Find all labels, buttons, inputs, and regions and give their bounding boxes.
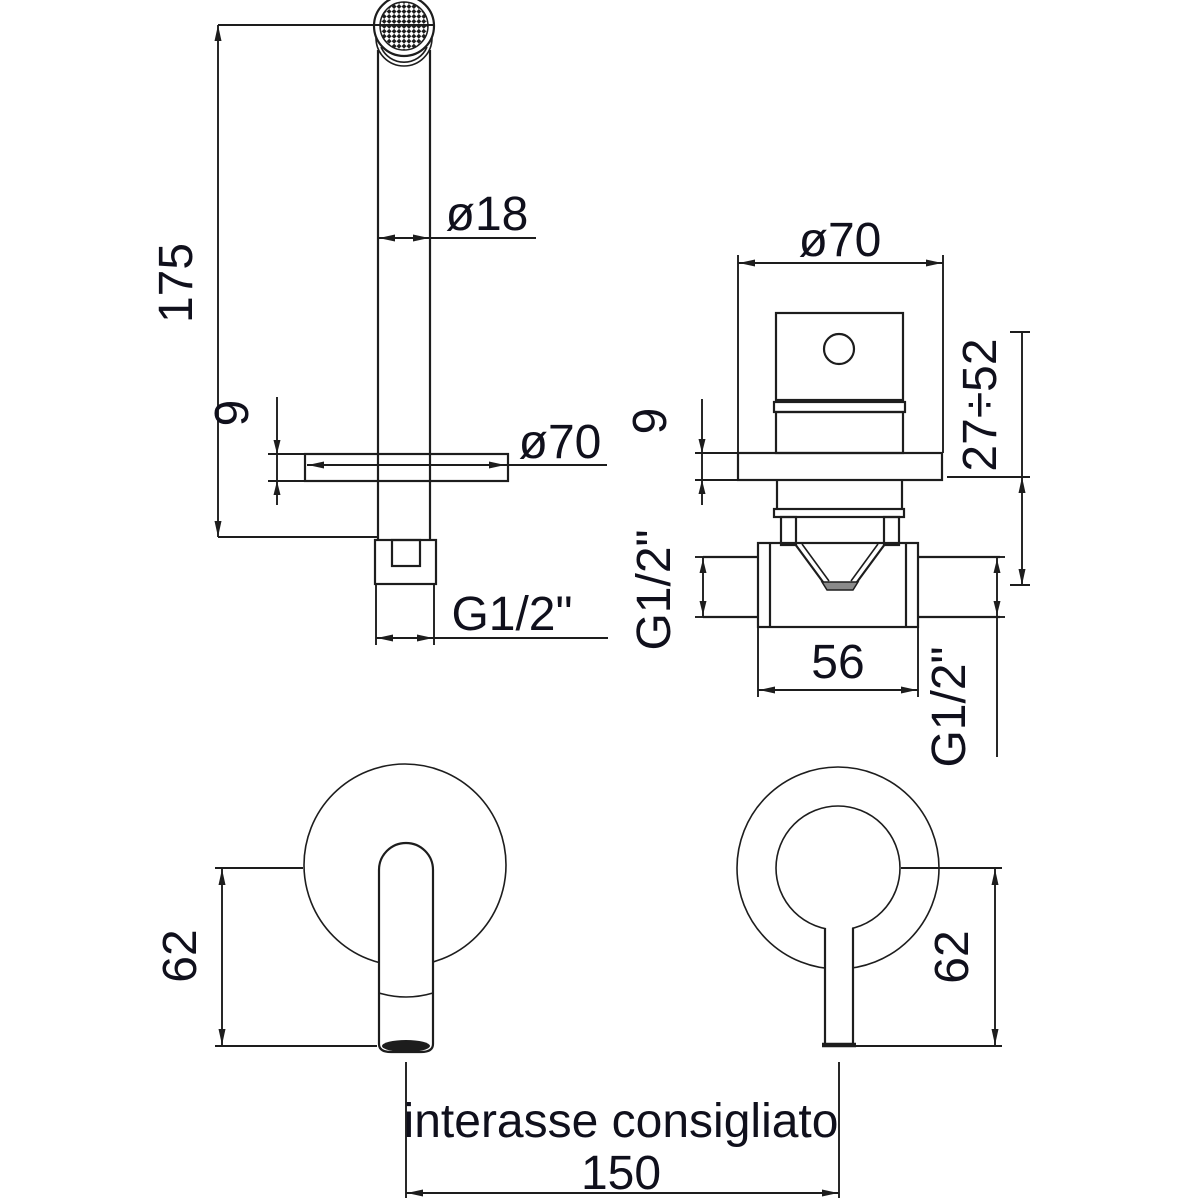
- spout-flange-diameter-label: ø70: [519, 416, 602, 469]
- spout-height-label: 175: [150, 243, 203, 323]
- mixer-knob-base: [776, 412, 903, 453]
- mixer-funnel-right-outer: [857, 544, 885, 582]
- mixer-front-handle-fill: [826, 926, 852, 1044]
- mixer-front-knob: [776, 806, 900, 930]
- mixer-knob-band: [774, 402, 905, 412]
- mixer-front-drop-label: 62: [926, 930, 979, 983]
- mixer-front-dimensions: 62: [856, 868, 1002, 1046]
- mixer-wall-plate: [738, 453, 942, 480]
- technical-drawing-page: 175 ø18 ø70 9 G1/2": [0, 0, 1200, 1200]
- faucet-dimension-drawing: 175 ø18 ø70 9 G1/2": [0, 0, 1200, 1200]
- spout-front-outlet: [382, 1040, 430, 1052]
- mixer-outlet-thread-label: G1/2": [923, 646, 976, 767]
- spout-front-dimensions: 62: [154, 868, 377, 1046]
- spout-connector-notch: [392, 540, 420, 566]
- mixer-inlet-thread-label: G1/2": [628, 529, 681, 650]
- mixer-cartridge-post-left: [781, 517, 796, 545]
- mixer-body-length-label: 56: [811, 636, 864, 689]
- mixer-wall-depth-label: 27÷52: [954, 338, 1007, 471]
- spout-front-drop-label: 62: [154, 929, 207, 982]
- spacing-value-label: 150: [581, 1147, 661, 1200]
- aerator-mesh: [380, 2, 428, 50]
- spout-front-view: [304, 764, 506, 1052]
- spout-diameter-label: ø18: [446, 188, 529, 241]
- spacing-caption-label: interasse consigliato: [404, 1095, 839, 1148]
- mixer-plate-thickness-label: 9: [624, 408, 677, 435]
- spout-connector-block: [375, 540, 436, 584]
- mixer-cartridge-post-right: [884, 517, 899, 545]
- spout-side-view: [305, 0, 508, 584]
- mixer-side-dimensions: ø70 9 27÷52 G1/2" 56 G1/2: [624, 214, 1030, 768]
- mixer-funnel-right-inner: [851, 544, 878, 581]
- mixer-plate-diameter-label: ø70: [799, 214, 882, 267]
- mixer-handle-knob: [776, 313, 903, 400]
- spout-front-tube: [379, 843, 433, 1052]
- spout-thread-label: G1/2": [451, 588, 572, 641]
- mixer-front-view: [737, 767, 939, 1045]
- spout-flange-thickness-label: 9: [206, 400, 259, 427]
- mixer-funnel-left-outer: [795, 544, 823, 582]
- mixer-knob-dot: [824, 334, 854, 364]
- mixer-funnel-base: [822, 582, 858, 590]
- spout-wall-flange: [305, 454, 508, 481]
- mixer-cartridge-cap: [774, 509, 904, 517]
- mixer-funnel-left-inner: [802, 544, 829, 581]
- spacing-dimension: interasse consigliato 150: [404, 1062, 839, 1200]
